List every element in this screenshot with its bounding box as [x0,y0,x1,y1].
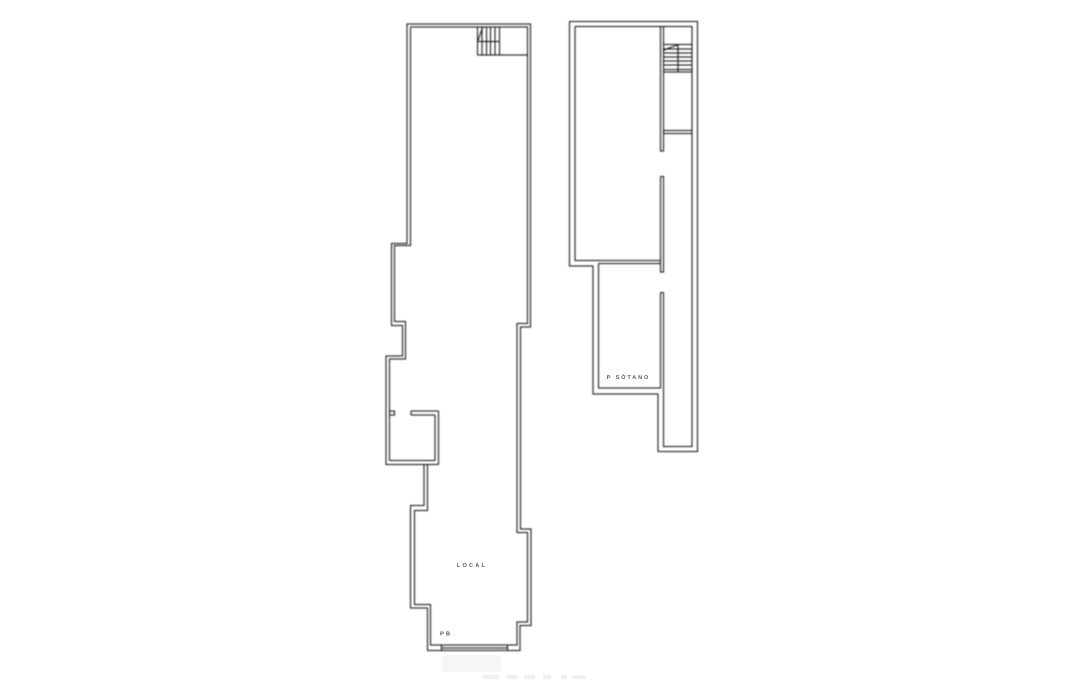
svg-text:P SÓTANO: P SÓTANO [607,374,650,381]
svg-text:PB: PB [440,632,452,638]
svg-text:LOCAL: LOCAL [457,563,487,569]
